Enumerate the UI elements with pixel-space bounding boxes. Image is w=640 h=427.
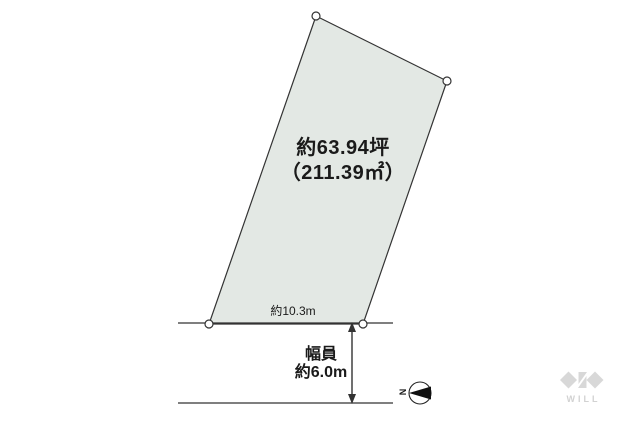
vertex-marker-bottom-left — [205, 320, 213, 328]
road-width-title: 幅員 — [271, 346, 371, 364]
vertex-marker-right — [443, 77, 451, 85]
plot-diagram: 約63.94坪 （211.39㎡） 約10.3m 幅員 約6.0m N WILL — [0, 0, 640, 427]
will-logo-diamond-left — [560, 372, 577, 389]
will-logo-icon — [560, 372, 604, 389]
vertex-marker-top — [312, 12, 320, 20]
frontage-dimension-label: 約10.3m — [233, 304, 353, 318]
road-width-value: 約6.0m — [271, 364, 371, 382]
parcel-area-label: 約63.94坪 （211.39㎡） — [233, 136, 453, 186]
will-logo-diamond-right — [587, 372, 604, 389]
compass-north-label: N — [397, 386, 409, 398]
watermark-text: WILL — [557, 394, 607, 405]
parcel-area-sqm: （211.39㎡） — [233, 161, 453, 186]
road-width-label: 幅員 約6.0m — [271, 346, 371, 382]
parcel-area-tsubo: 約63.94坪 — [233, 136, 453, 161]
vertex-marker-bottom-right — [359, 320, 367, 328]
